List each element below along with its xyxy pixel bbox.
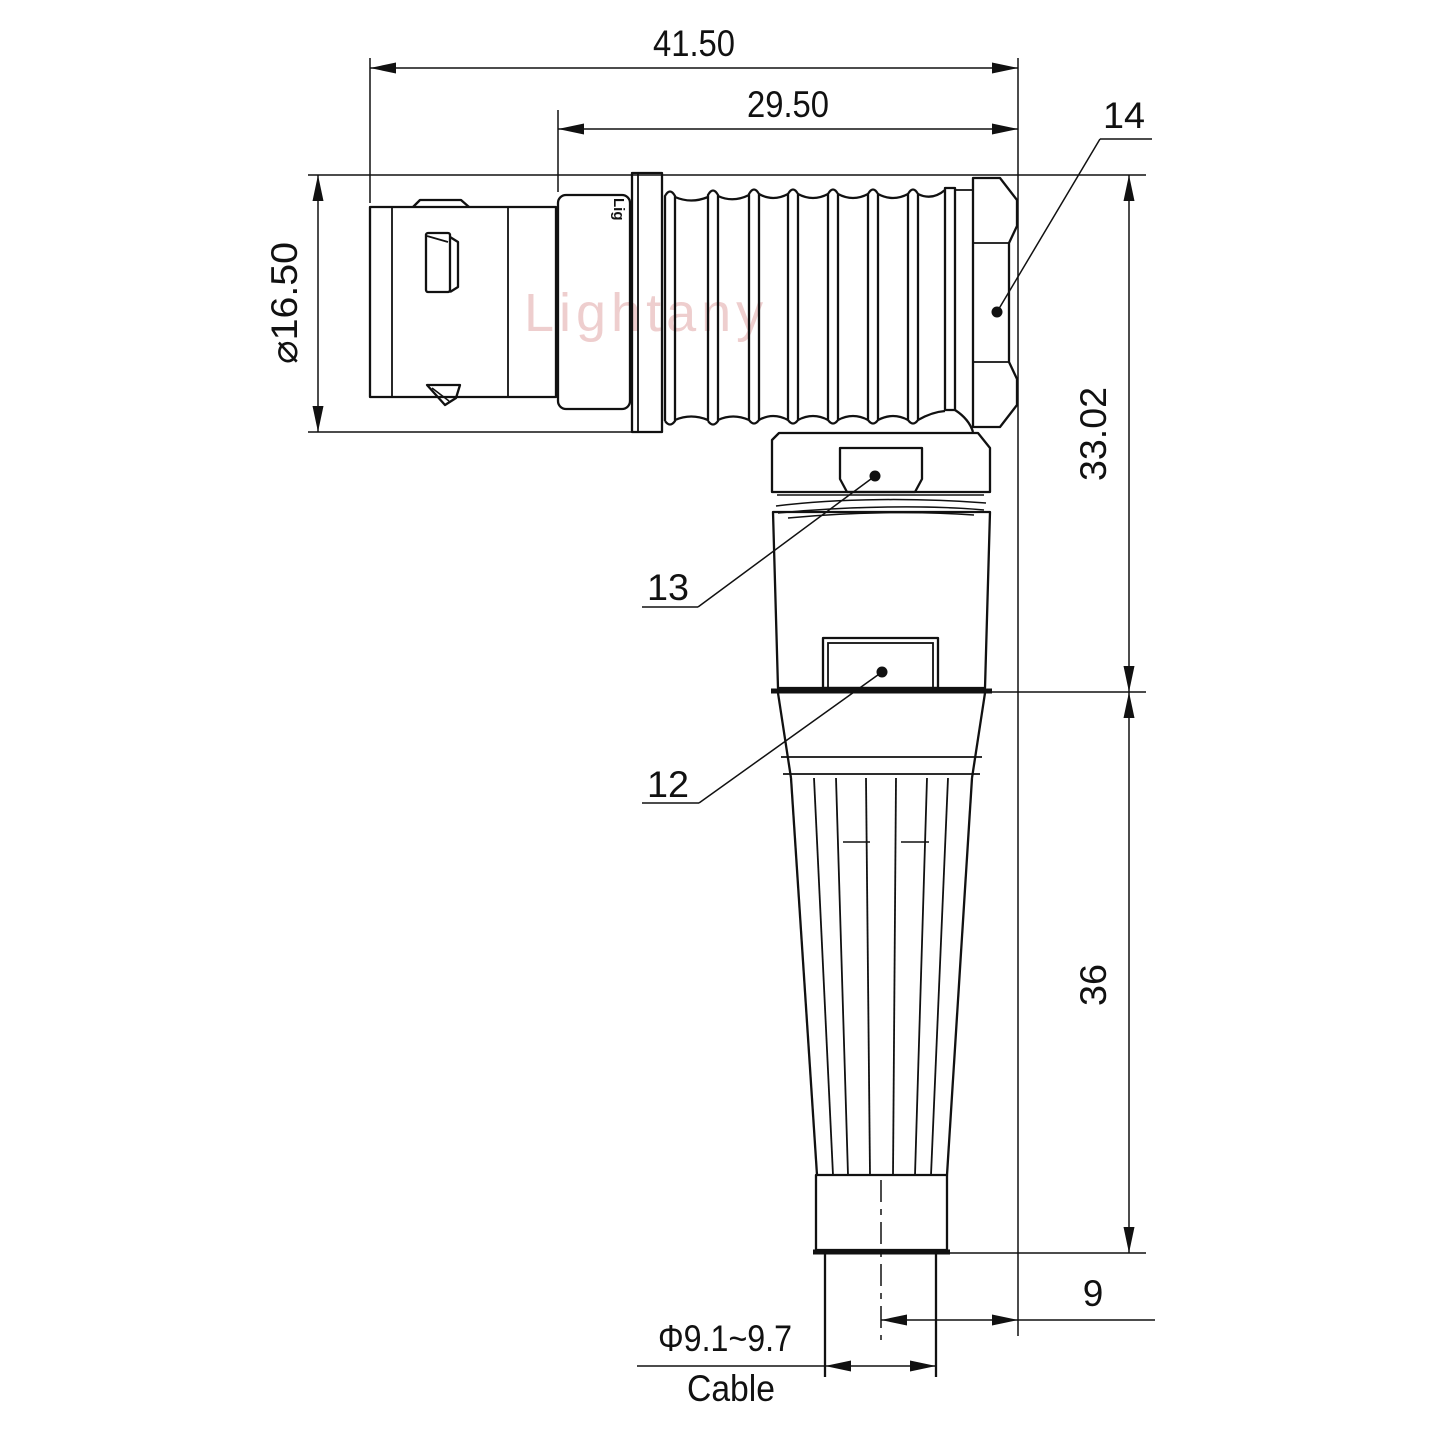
arrowhead [881, 1315, 907, 1326]
cable [825, 1180, 936, 1377]
bottom-latch-wedge [427, 385, 460, 405]
boot-rib-line [836, 778, 848, 1175]
body-tab-inner [828, 643, 933, 688]
dim-elbow-height-label: 33.02 [1073, 387, 1114, 481]
leader-dot [870, 471, 881, 482]
groove-bottom [878, 416, 908, 420]
callout-12-label: 12 [647, 764, 689, 805]
body-tab-outer [823, 638, 938, 688]
coupling-tab [840, 448, 922, 492]
arrowhead [992, 124, 1018, 135]
cable-text-label: Cable [687, 1368, 775, 1409]
thread-interface [776, 495, 986, 518]
arrowhead [558, 124, 584, 135]
groove-top [878, 194, 908, 198]
elbow-collar [772, 433, 990, 492]
groove-top [838, 194, 868, 198]
arrowhead [910, 1361, 936, 1372]
arrowhead [313, 175, 324, 201]
dimensions: 41.50 29.50 ⌀16.50 33.02 [264, 23, 1155, 1409]
arrowhead [1124, 666, 1135, 692]
groove-bottom [675, 417, 708, 421]
groove-bottom [838, 416, 868, 420]
rib [908, 190, 918, 424]
bottom-latch [427, 385, 460, 405]
latch-window-side [450, 237, 458, 292]
boot-edge-right [972, 693, 985, 778]
dim-boot-length-label: 36 [1073, 964, 1114, 1006]
latch-window [426, 233, 458, 292]
boot-rib-line [866, 778, 870, 1175]
groove-top [798, 194, 828, 198]
leader-line [997, 139, 1100, 312]
arrowhead [992, 63, 1018, 74]
elbow-outer-curve [955, 410, 973, 432]
dim-overall-length: 41.50 [370, 23, 1018, 203]
groove-top [718, 195, 749, 199]
rib [788, 190, 798, 424]
arrowhead [1124, 692, 1135, 718]
washer-ring [945, 188, 955, 410]
watermark-text: Lightany [524, 283, 768, 343]
boot-ribs [791, 778, 972, 1175]
groove-top [918, 190, 945, 197]
dim-rear-length-label: 29.50 [747, 84, 829, 125]
boot-rib-line [893, 778, 896, 1175]
callout-14-label: 14 [1103, 95, 1145, 136]
thread-line [788, 513, 974, 518]
dim-cable-diameter: Φ9.1~9.7 Cable [637, 1318, 936, 1409]
elbow-vertical-assembly [771, 433, 992, 1377]
groove-top [675, 197, 708, 201]
elbow-collar-outline [772, 433, 990, 492]
groove-bottom [918, 411, 945, 420]
dim-cable-diameter-label: Φ9.1~9.7 [658, 1318, 792, 1359]
leader-dot [992, 307, 1003, 318]
arrowhead [1124, 175, 1135, 201]
boot-rib-line [915, 778, 927, 1175]
leader-dot [877, 667, 888, 678]
boot-rib-line [791, 778, 817, 1175]
cable-boot [778, 693, 985, 1175]
dim-overall-length-label: 41.50 [653, 23, 735, 64]
thread-line [776, 500, 986, 506]
boot-rib-line [931, 778, 948, 1175]
hex-nut [973, 178, 1017, 427]
dim-rear-length: 29.50 [558, 84, 1018, 192]
arrowhead [370, 63, 396, 74]
groove-bottom [798, 416, 828, 420]
dim-boot-length: 36 [950, 692, 1146, 1253]
hex-nut-outline [973, 178, 1017, 427]
connector-body [771, 512, 992, 691]
arrowhead [1124, 1227, 1135, 1253]
dim-shell-diameter-label: ⌀16.50 [264, 242, 305, 364]
strain-relief-bellows [665, 190, 945, 425]
arrowhead [313, 406, 324, 432]
groove-top [759, 194, 788, 198]
connector-body-outline [773, 512, 990, 688]
boot-rib-line [947, 778, 972, 1175]
arrowhead [825, 1361, 851, 1372]
rib [868, 190, 878, 424]
sleeve-logo-text: Lig [610, 198, 627, 221]
dim-cable-offset-label: 9 [1083, 1273, 1104, 1314]
latch-window-edge [427, 236, 448, 242]
callout-13-label: 13 [647, 567, 689, 608]
groove-bottom [718, 417, 749, 421]
boot-edge-left [778, 693, 791, 778]
arrowhead [992, 1315, 1018, 1326]
drawing-page: Lightany Lig [0, 0, 1440, 1440]
rib [828, 190, 838, 424]
dim-elbow-height: 33.02 [992, 175, 1146, 692]
groove-bottom [759, 416, 788, 420]
technical-drawing-canvas: Lightany Lig [0, 0, 1440, 1440]
boot-rib-line [814, 778, 833, 1175]
